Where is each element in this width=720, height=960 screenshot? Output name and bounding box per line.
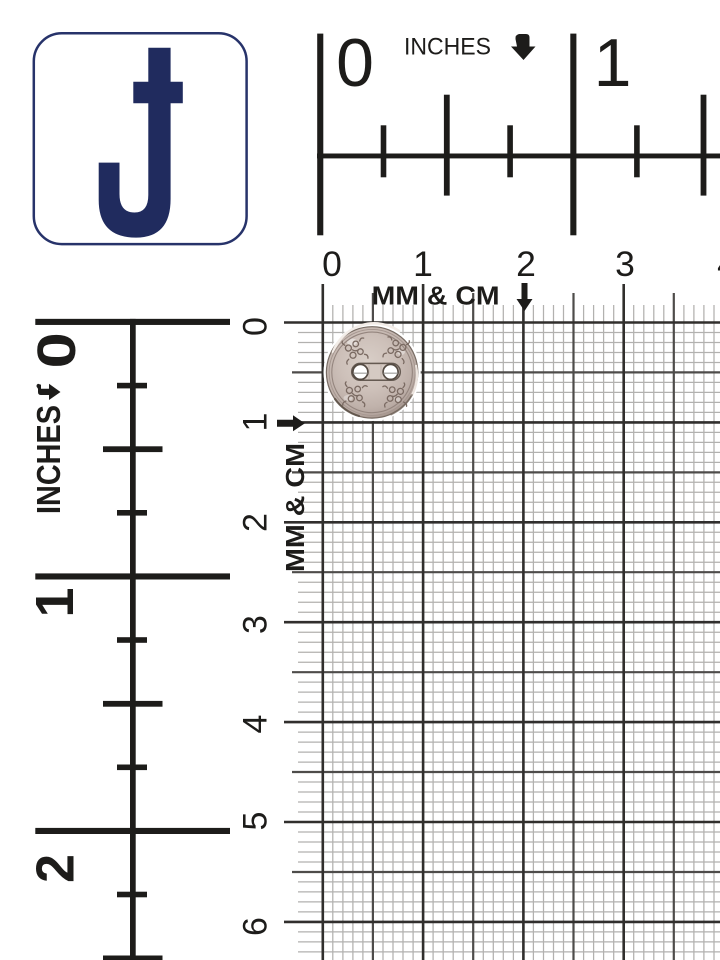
svg-text:2: 2 xyxy=(516,244,536,284)
svg-text:INCHES: INCHES xyxy=(30,405,67,514)
svg-text:1: 1 xyxy=(25,587,85,617)
svg-text:3: 3 xyxy=(237,615,275,634)
svg-text:0: 0 xyxy=(237,317,275,336)
svg-text:5: 5 xyxy=(237,812,275,831)
svg-text:1: 1 xyxy=(413,244,433,284)
svg-text:0: 0 xyxy=(26,332,86,368)
svg-text:1: 1 xyxy=(237,413,275,432)
svg-text:1: 1 xyxy=(594,25,632,101)
svg-text:0: 0 xyxy=(322,244,342,284)
svg-text:0: 0 xyxy=(336,25,374,101)
svg-text:2: 2 xyxy=(26,854,86,883)
svg-text:6: 6 xyxy=(237,917,275,936)
svg-text:MM & CM: MM & CM xyxy=(372,281,500,311)
svg-text:4: 4 xyxy=(237,715,275,734)
svg-text:2: 2 xyxy=(237,513,275,532)
svg-text:3: 3 xyxy=(615,244,635,284)
svg-text:MM & CM: MM & CM xyxy=(280,443,310,572)
svg-text:INCHES: INCHES xyxy=(404,34,491,61)
